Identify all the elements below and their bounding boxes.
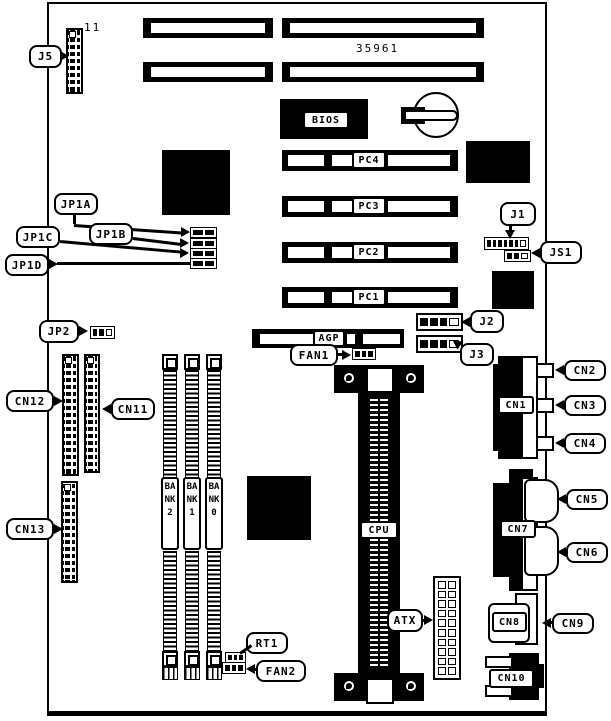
chipset-chip-2 [247, 476, 311, 540]
pci-pc2-strip [388, 247, 450, 258]
atx-pin [438, 658, 446, 666]
js1-jumper [504, 250, 531, 262]
pin [99, 329, 103, 336]
j2-header [416, 313, 463, 331]
cpu-screw [342, 679, 356, 693]
dimm-bank0-tab-bottom [206, 651, 222, 667]
dimm-bank1-tab-bottom [184, 651, 200, 667]
cn3-callout: CN3 [564, 395, 606, 416]
atx-pin [438, 600, 446, 608]
jp2-arrow [79, 326, 88, 336]
cn10-slot-top [485, 656, 513, 668]
fan2-callout: FAN2 [256, 660, 306, 682]
cn12-arrow [54, 396, 63, 406]
pin [355, 351, 360, 357]
pci-pc2-strip [332, 247, 352, 258]
cpu-screw [404, 679, 418, 693]
j5-pin1-label: 11 [84, 21, 101, 34]
j5-header [66, 28, 83, 94]
pin-open [106, 329, 112, 336]
dimm-bank2-upper [163, 370, 177, 477]
pin [193, 230, 203, 235]
dimm-bank2-foot [162, 667, 178, 680]
atx-pin [448, 639, 456, 647]
pci-pc1-label: PC1 [352, 288, 386, 306]
atx-pin [438, 591, 446, 599]
pci-pc4-strip [288, 155, 324, 166]
cn7-label: CN7 [500, 520, 536, 538]
pci-pc2-label: PC2 [352, 243, 386, 261]
pin [193, 261, 203, 266]
dimm-bank2-tab-bottom [162, 651, 178, 667]
pin [487, 240, 491, 247]
cn5-arrow [557, 494, 566, 504]
atx-pin [438, 581, 446, 589]
dimm-bank1-foot [184, 667, 200, 680]
motherboard-diagram: 35961 11 J5 BIOS PC4 PC3 PC2 PC1 JP1A JP… [0, 0, 611, 721]
cn2-arrow [555, 365, 564, 375]
cn13-callout: CN13 [6, 518, 54, 540]
cn1-label: CN1 [498, 396, 534, 414]
cn9-callout: CN9 [552, 613, 594, 634]
agp-strip [347, 334, 355, 344]
controller-chip [492, 271, 534, 309]
isa-slot-2-right [282, 62, 484, 82]
js1-arrow [531, 248, 540, 258]
pci-pc3-label: PC3 [352, 197, 386, 215]
cn4-port [536, 436, 554, 451]
atx-pin [438, 619, 446, 627]
pin [493, 240, 497, 247]
dimm-bank0-upper [207, 370, 221, 477]
pin [205, 241, 215, 246]
atx-pin [448, 600, 456, 608]
rt1-callout: RT1 [246, 632, 288, 654]
atx-pin [438, 629, 446, 637]
fan1-header [352, 348, 376, 360]
pin [225, 665, 230, 671]
jp1d-callout: JP1D [5, 254, 49, 276]
jp1c-callout: JP1C [16, 226, 60, 248]
pin [205, 230, 215, 235]
atx-pin [448, 667, 456, 675]
dimm-bank2-tab-top [162, 354, 178, 370]
isa-slot-2-left [143, 62, 273, 82]
pci-pc1-strip [388, 292, 450, 303]
cpu-bracket-notch [366, 678, 394, 704]
pin [232, 665, 237, 671]
fan2-header [222, 662, 246, 674]
battery-latch [404, 110, 458, 121]
atx-pin [448, 610, 456, 618]
pci-pc1-strip [332, 292, 352, 303]
pin [362, 351, 367, 357]
pin [238, 665, 243, 671]
cn8-label: CN8 [492, 612, 527, 632]
pin [205, 251, 215, 256]
j3-callout: J3 [460, 343, 494, 366]
j1-callout: J1 [500, 202, 536, 226]
js1-callout: JS1 [540, 241, 582, 264]
dimm-bank1-label: BANK1 [183, 477, 201, 550]
atx-pin [438, 667, 446, 675]
pin [515, 240, 519, 247]
pci-pc4-label: PC4 [352, 151, 386, 169]
cn11-arrow [102, 404, 111, 414]
agp-strip [260, 334, 315, 344]
cn9-leader [548, 621, 554, 624]
pin [420, 340, 428, 348]
pci-pc2-strip [288, 247, 324, 258]
pin [440, 318, 448, 326]
cpu-screw [342, 371, 356, 385]
dimm-bank2-lower [163, 551, 177, 651]
atx-pin [448, 648, 456, 656]
cn5-callout: CN5 [566, 489, 608, 510]
pin [420, 318, 428, 326]
atx-pin [438, 639, 446, 647]
pin [239, 655, 243, 660]
cn6-arrow [557, 547, 566, 557]
cn4-arrow [555, 438, 564, 448]
cn12-callout: CN12 [6, 390, 54, 412]
cn5-dsub-port [524, 479, 559, 523]
j2-arrow [461, 317, 470, 327]
board-part-number: 35961 [356, 42, 399, 55]
isa-slot-1-right [282, 18, 484, 38]
jp1b-callout: JP1B [89, 223, 133, 245]
bios-label: BIOS [303, 111, 349, 129]
pin [228, 655, 232, 660]
fan2-leader [252, 668, 258, 671]
fan1-callout: FAN1 [290, 344, 338, 366]
cn4-callout: CN4 [564, 433, 606, 454]
cn2-callout: CN2 [564, 360, 606, 381]
cn10-nub [539, 664, 544, 688]
j5-callout: J5 [29, 45, 62, 68]
pin [498, 240, 502, 247]
chipset-chip-1 [162, 150, 230, 215]
jp2-callout: JP2 [39, 320, 79, 343]
cpu-screw [404, 371, 418, 385]
jp1c-arrow [180, 248, 189, 258]
cn11-callout: CN11 [111, 398, 155, 420]
dimm-bank0-tab-top [206, 354, 222, 370]
dimm-bank1-upper [185, 370, 199, 477]
dimm-bank2-label: BANK2 [161, 477, 179, 550]
cpu-label: CPU [360, 521, 398, 539]
atx-pin [448, 658, 456, 666]
cn10-label: CN10 [489, 669, 534, 688]
cn2-port [536, 363, 554, 378]
j1-arrow [505, 230, 515, 239]
dimm-bank0-label: BANK0 [205, 477, 223, 550]
jp1a-jumper [190, 227, 217, 238]
atx-pin [448, 591, 456, 599]
pci-pc3-strip [388, 201, 450, 212]
atx-pin [448, 629, 456, 637]
cn3-arrow [555, 400, 564, 410]
cn6-callout: CN6 [566, 542, 608, 563]
fan1-arrow [342, 350, 351, 360]
j5-arrow [60, 51, 69, 61]
pin [514, 253, 519, 259]
pin [368, 351, 373, 357]
pci-pc3-strip [288, 201, 324, 212]
cpu-bracket-notch [366, 367, 394, 393]
io-chip [466, 141, 530, 183]
dimm-bank0-lower [207, 551, 221, 651]
atx-pin [448, 581, 456, 589]
pin [193, 241, 203, 246]
pin [507, 253, 512, 259]
jp1a-callout: JP1A [54, 193, 98, 215]
cn12-header [62, 354, 79, 476]
dimm-bank1-lower [185, 551, 199, 651]
jp1d-jumper [190, 258, 217, 269]
pin-open [520, 240, 526, 247]
pin [430, 318, 438, 326]
jp1a-arrow [181, 227, 190, 237]
pci-pc4-strip [332, 155, 352, 166]
cn11-header [84, 354, 100, 473]
atx-pin [438, 648, 446, 656]
pci-pc3-strip [332, 201, 352, 212]
cn13-arrow [54, 524, 63, 534]
jp2-jumper [90, 326, 115, 339]
pci-pc1-strip [288, 292, 324, 303]
pin [193, 251, 203, 256]
jp1b-arrow [180, 238, 189, 248]
pin [234, 655, 238, 660]
atx-connector [433, 576, 461, 680]
pin-open [449, 318, 459, 326]
jp1a-leader [73, 215, 76, 224]
pin [504, 240, 508, 247]
agp-strip [363, 334, 400, 344]
isa-slot-1-left [143, 18, 273, 38]
pci-pc4-strip [388, 155, 450, 166]
dimm-bank0-foot [206, 667, 222, 680]
cn13-header [61, 481, 78, 583]
pin [205, 261, 215, 266]
atx-arrow [424, 615, 433, 625]
pin-open [521, 253, 528, 259]
atx-callout: ATX [387, 609, 423, 632]
j2-callout: J2 [470, 310, 504, 333]
pin [509, 240, 513, 247]
pin [440, 340, 448, 348]
dimm-bank1-tab-top [184, 354, 200, 370]
pin [430, 340, 438, 348]
jp1d-leader [57, 262, 190, 265]
atx-pin [448, 619, 456, 627]
atx-pin [438, 610, 446, 618]
pin [93, 329, 97, 336]
cn3-port [536, 398, 554, 413]
